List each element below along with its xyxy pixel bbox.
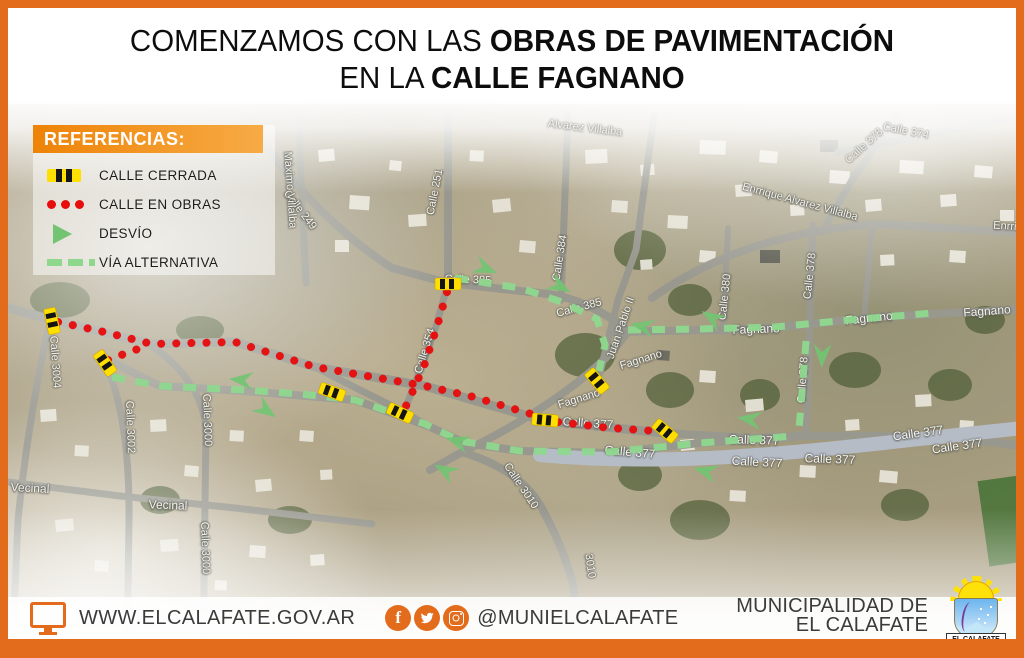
legend-item-calle-en-obras: CALLE EN OBRAS — [47, 190, 275, 219]
legend: REFERENCIAS: CALLE CERRADA CALLE EN OBRA… — [33, 125, 275, 283]
street-works-icon — [47, 200, 99, 209]
closed-street-icon — [47, 169, 99, 182]
instagram-icon — [443, 605, 469, 631]
monitor-icon — [30, 602, 66, 628]
footer: WWW.ELCALAFATE.GOV.AR @MUNIELCALAFATE MU… — [8, 597, 1016, 639]
shield-icon — [954, 598, 998, 638]
legend-items: CALLE CERRADA CALLE EN OBRAS DESVÍO VÍA … — [33, 153, 275, 283]
announcement-flyer: Calle 249Máximo VillalbaCalle 251Calle 3… — [0, 0, 1024, 658]
page-title-line2: EN LA CALLE FAGNANO — [33, 59, 991, 96]
twitter-icon — [414, 605, 440, 631]
detour-arrow-icon — [47, 224, 99, 244]
legend-item-via-alternativa: VÍA ALTERNATIVA — [47, 248, 275, 277]
alternative-route-icon — [47, 259, 99, 266]
legend-item-calle-cerrada: CALLE CERRADA — [47, 161, 275, 190]
website-url: WWW.ELCALAFATE.GOV.AR — [79, 607, 355, 630]
legend-title: REFERENCIAS: — [33, 125, 263, 153]
header: COMENZAMOS CON LAS OBRAS DE PAVIMENTACIÓ… — [8, 8, 1016, 104]
social-icons — [385, 605, 469, 631]
page-title-line1: COMENZAMOS CON LAS OBRAS DE PAVIMENTACIÓ… — [33, 22, 991, 59]
facebook-icon — [385, 605, 411, 631]
municipality-name: MUNICIPALIDAD DE EL CALAFATE — [736, 597, 928, 635]
municipality-logo: EL CALAFATE — [948, 576, 1004, 648]
footer-orange-strip — [8, 639, 1016, 650]
legend-item-desvio: DESVÍO — [47, 219, 275, 248]
social-handle: @MUNIELCALAFATE — [477, 607, 678, 630]
